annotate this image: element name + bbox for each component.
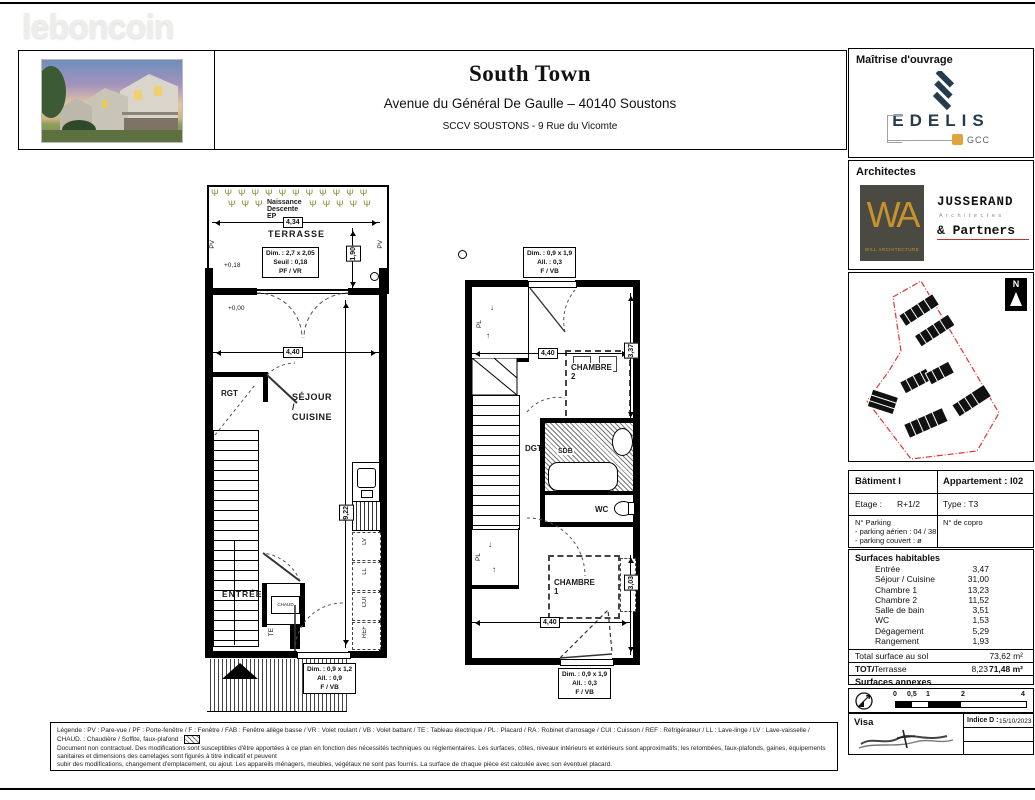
- arrow-down: ↓: [488, 540, 492, 549]
- surfaces-divider: [849, 649, 1033, 650]
- win-all: All. : 0,3: [562, 679, 607, 688]
- chambre2-label: CHAMBRE 2: [570, 363, 613, 381]
- wall-left: [465, 280, 472, 665]
- washbasin: [612, 428, 633, 456]
- dim-4-40: 4,40: [283, 347, 303, 358]
- wall-bottom: [205, 651, 297, 658]
- etage-label: Etage :: [855, 499, 882, 509]
- compass-icon: [853, 690, 877, 711]
- sink-bowl: [357, 468, 376, 488]
- surfaces-divider: [849, 662, 1033, 663]
- surface-label: Séjour / Cuisine: [875, 574, 935, 584]
- surface-row: Séjour / Cuisine31,00: [849, 574, 1033, 584]
- win-all: All. : 0,9: [307, 674, 352, 683]
- visa-signature: [855, 726, 959, 752]
- win-dim: Dim. : 0,9 x 1,9: [562, 670, 607, 679]
- appliance-label: REF: [362, 626, 368, 638]
- indice-row-divider: [963, 727, 1033, 728]
- scale-bar-box: 0 0,5 1 2 4: [848, 688, 1034, 713]
- plan-sheet: leboncoin South Town Avenue du Général D…: [0, 0, 1035, 800]
- scale-tick-4: 4: [1021, 691, 1025, 698]
- surfaces-title: Surfaces habitables: [855, 553, 940, 563]
- appliance-ref: REF: [352, 622, 381, 650]
- jusserand-partners: & Partners: [937, 223, 1029, 240]
- surface-value: 1,93: [972, 636, 989, 646]
- annexe-label: Terrasse: [874, 664, 907, 674]
- wa-sub-label: WILL ARCHITECTURE: [860, 247, 924, 252]
- arrow-up: ↑: [486, 331, 490, 340]
- gcc-label: GCC: [967, 135, 990, 145]
- surface-value: 31,00: [968, 574, 989, 584]
- scale-seg: [928, 702, 961, 707]
- scale-tick-2: 2: [961, 691, 965, 698]
- surfaces-divider: [849, 675, 1033, 676]
- indice-row-divider: [963, 741, 1033, 742]
- bay-window-line: [255, 289, 349, 291]
- surface-row: Chambre 211,52: [849, 595, 1033, 605]
- stairs-winder: [472, 358, 518, 396]
- scale-tick-1: 1: [926, 691, 930, 698]
- wall-bottom: [348, 651, 387, 658]
- total-label: Total surface au sol: [855, 651, 928, 661]
- win-dim: Dim. : 0,9 x 1,2: [307, 665, 352, 674]
- entry-window-info: Dim. : 0,9 x 1,2 All. : 0,9 F / VB: [303, 663, 356, 694]
- wall-left: [205, 288, 213, 658]
- annexe-row: Terrasse 8,23: [874, 664, 988, 674]
- appliance-lv: LV: [352, 532, 381, 561]
- appliance-ll: LL: [352, 562, 381, 591]
- kitchen-sink: [352, 462, 381, 502]
- dim-9-22: 9,22: [339, 505, 354, 521]
- rgt-wall: [213, 372, 268, 377]
- soffite-swatch: [184, 735, 200, 744]
- chambre1-label: CHAMBRE 1: [553, 578, 596, 596]
- photo-balcony: [122, 112, 178, 115]
- architectes-label: Architectes: [856, 166, 916, 178]
- etage-value: R+1/2: [897, 499, 920, 509]
- top-window-info: Dim. : 0,9 x 1,9 All. : 0,3 F / VB: [523, 247, 576, 278]
- visa-box: Visa Indice D : 15/10/2023: [848, 713, 1034, 755]
- appartement-cell: Appartement : I02: [943, 476, 1023, 487]
- surface-value: 3,47: [972, 564, 989, 574]
- indice-label: Indice D :: [967, 717, 999, 724]
- scale-seg: [896, 702, 912, 707]
- appliance-cui: CUI: [352, 592, 381, 621]
- dim-1-90: 1,90: [346, 246, 361, 262]
- dim-3-03: 3,03: [624, 575, 639, 591]
- win-seuil: Seuil : 0,18: [266, 258, 315, 267]
- te-panel: [290, 625, 300, 649]
- photo-window: [134, 90, 142, 100]
- dim-4-40-top: 4,40: [538, 348, 558, 359]
- surface-label: Rangement: [875, 636, 919, 646]
- photo-window: [154, 86, 162, 96]
- legend-box: Légende : PV : Pare-vue / PF : Porte-fen…: [50, 722, 838, 771]
- site-plan-box: N: [848, 272, 1034, 462]
- pl-label: PL: [475, 553, 482, 561]
- photo-window: [102, 100, 108, 108]
- entrance-arrow: [222, 663, 258, 679]
- wa-monogram: WA: [860, 193, 924, 237]
- wall-bottom: [612, 658, 640, 665]
- surface-row: Rangement1,93: [849, 636, 1033, 646]
- win-type: F / VB: [307, 683, 352, 692]
- stairs-upper: [472, 395, 520, 530]
- project-photo: [41, 59, 183, 143]
- legend-text-1: Légende : PV : Pare-vue / PF : Porte-fen…: [57, 727, 810, 743]
- pv-label-left: PV: [209, 240, 216, 249]
- jusserand-sub: A r c h i t e c t e s: [939, 213, 1031, 219]
- sejour-cuisine-label: SÉJOUR / CUISINE: [292, 392, 332, 422]
- rgt-label: RGT: [221, 389, 238, 398]
- arrow-up: ↑: [492, 565, 496, 574]
- wall-segment: [300, 583, 305, 627]
- surface-label: Salle de bain: [875, 605, 924, 615]
- entry-window: [297, 652, 351, 659]
- dim-4-34: 4,34: [283, 217, 303, 228]
- indice-date: 15/10/2023: [999, 718, 1032, 725]
- maitrise-douvrage-box: Maîtrise d'ouvrage EDELIS GCC: [848, 48, 1034, 158]
- wc-label: WC: [595, 505, 608, 514]
- pv-label-right: PV: [377, 240, 384, 249]
- north-arrow-icon: N: [1005, 278, 1027, 311]
- wall-top: [465, 280, 528, 287]
- photo-grass: [42, 130, 182, 143]
- scale-tick-0: 0: [893, 691, 897, 698]
- project-address: Avenue du Général De Gaulle – 40140 Sous…: [215, 96, 845, 111]
- surface-value: 1,53: [972, 615, 989, 625]
- win-type: F / VB: [527, 267, 572, 276]
- ep-downpipe: [458, 250, 467, 259]
- total-row: Total surface au sol 73,62 m²: [849, 651, 1033, 661]
- appliance-label: CUI: [362, 597, 368, 607]
- arrow-down: ↓: [490, 303, 494, 312]
- scale-bar: [895, 701, 1027, 708]
- gcc-icon: [952, 134, 963, 145]
- parking-title: N° Parking: [855, 518, 891, 527]
- wa-logo: WA WILL ARCHITECTURE: [860, 185, 924, 261]
- win-type: PF / VR: [266, 267, 315, 276]
- level-018: +0,18: [224, 262, 240, 269]
- top-frame-line: [0, 2, 1035, 4]
- te-label: TE: [268, 628, 275, 636]
- rgt-wall: [263, 372, 268, 402]
- sdb-wall: [540, 491, 640, 495]
- bay-window-line: [255, 293, 349, 294]
- surface-row: Salle de bain3,51: [849, 605, 1033, 615]
- top-window: [528, 281, 577, 288]
- type-cell: Type : T3: [943, 499, 978, 509]
- header-band: South Town Avenue du Général De Gaulle –…: [18, 50, 847, 150]
- total-value: 73,62 m²: [989, 651, 1023, 661]
- table-col-divider: [937, 471, 938, 547]
- surface-label: Entrée: [875, 564, 900, 574]
- surface-row: WC1,53: [849, 615, 1033, 625]
- bottom-frame-line: [0, 788, 1035, 790]
- kitchen-rack: [352, 501, 381, 531]
- surface-label: Chambre 2: [875, 595, 917, 605]
- bottom-window: [560, 659, 614, 666]
- shab-value: 71,48 m²: [989, 664, 1023, 674]
- terrace-window-info: Dim. : 2,7 x 2,05 Seuil : 0,18 PF / VR: [262, 247, 319, 278]
- entree-label: ENTRÉE: [222, 589, 262, 599]
- surface-label: Dégagement: [875, 626, 924, 636]
- apartment-info-table: Bâtiment I Appartement : I02 Etage : R+1…: [848, 470, 1034, 548]
- surface-row: Dégagement5,29: [849, 626, 1033, 636]
- chaud-closet: CHAUD: [266, 583, 304, 625]
- wc-wall: [540, 522, 640, 527]
- surfaces-rows: Entrée3,47 Séjour / Cuisine31,00 Chambre…: [849, 564, 1033, 646]
- level-000: +0,00: [228, 305, 244, 312]
- edelis-wordmark: EDELIS: [849, 111, 1033, 131]
- toilet-tank: [628, 502, 635, 515]
- dim-9-22-line: [345, 300, 346, 648]
- scale-tick-05: 0,5: [907, 691, 917, 698]
- edelis-bracket-line: [887, 140, 953, 141]
- appliance-label: LL: [362, 568, 368, 575]
- terrasse-label: TERRASSE: [268, 229, 325, 239]
- chaud-unit: CHAUD: [271, 596, 300, 614]
- table-row-divider: [849, 493, 1033, 494]
- edelis-logo-icon: [921, 71, 963, 111]
- north-triangle: [1010, 292, 1022, 306]
- legend-line1: Légende : PV : Pare-vue / PF : Porte-fen…: [57, 727, 831, 744]
- surface-label: Chambre 1: [875, 585, 917, 595]
- win-type: F / VB: [562, 688, 607, 697]
- sdb-label: SDB: [557, 448, 574, 455]
- bottom-window-info: Dim. : 0,9 x 1,9 All. : 0,3 F / VB: [558, 668, 611, 699]
- parking-aerien: - parking aérien : 04 / 38: [855, 527, 936, 536]
- sdb-wall: [540, 423, 545, 525]
- north-letter: N: [1005, 279, 1027, 289]
- appliance-label: LV: [362, 538, 368, 545]
- surface-label: WC: [875, 615, 889, 625]
- leboncoin-watermark: leboncoin: [22, 8, 174, 47]
- dim-4-40-bottom: 4,40: [540, 617, 560, 628]
- architectes-box: Architectes WA WILL ARCHITECTURE JUSSERA…: [848, 160, 1034, 270]
- surface-row: Chambre 113,23: [849, 585, 1033, 595]
- surface-value: 3,51: [972, 605, 989, 615]
- bathtub: [548, 462, 618, 491]
- annexe-value: 8,23: [971, 664, 988, 674]
- surface-value: 11,52: [968, 595, 989, 605]
- project-title: South Town: [215, 61, 845, 87]
- jusserand-name: JUSSERAND: [937, 195, 1029, 209]
- parking-couvert: - parking couvert : ø: [855, 536, 922, 545]
- copro-cell: N° de copro: [943, 518, 983, 527]
- win-dim: Dim. : 0,9 x 1,9: [527, 249, 572, 258]
- legend-line2: Document non contractuel. Des modificati…: [57, 745, 831, 761]
- table-row-divider: [849, 515, 1033, 516]
- ep-downpipe: [370, 272, 379, 281]
- wall-top: [205, 288, 257, 295]
- wall-segment: [262, 583, 267, 627]
- win-dim: Dim. : 2,7 x 2,05: [266, 249, 315, 258]
- project-company: SCCV SOUSTONS - 9 Rue du Vicomte: [215, 121, 845, 132]
- sink-tap: [361, 490, 373, 498]
- win-all: All. : 0,3: [527, 258, 572, 267]
- pl-label: PL: [476, 320, 483, 328]
- wall-top: [575, 280, 640, 287]
- dim-3-03-line: [630, 555, 631, 655]
- surface-row: Entrée3,47: [849, 564, 1033, 574]
- stairs: [213, 430, 259, 647]
- surface-value: 5,29: [972, 626, 989, 636]
- maitrise-label: Maîtrise d'ouvrage: [856, 54, 953, 66]
- dim-3-37: 3,37: [624, 343, 639, 359]
- visa-divider: [963, 714, 964, 754]
- surface-value: 13,23: [968, 585, 989, 595]
- batiment-cell: Bâtiment I: [855, 476, 901, 487]
- wall-bottom: [465, 658, 560, 665]
- legend-line3: subir des modifications, changement d'em…: [57, 761, 831, 769]
- edelis-bracket: [887, 115, 902, 143]
